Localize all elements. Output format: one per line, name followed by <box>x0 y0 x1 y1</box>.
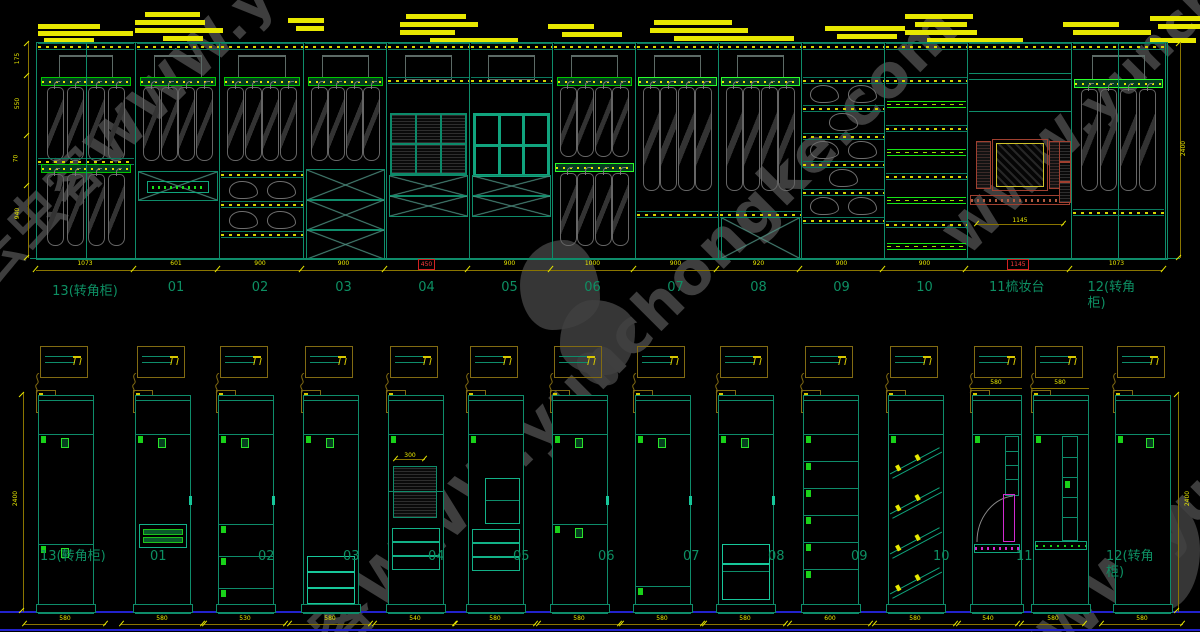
small-drawer-grid <box>390 113 467 175</box>
dim-text-block <box>288 18 324 23</box>
dim-text-block <box>145 12 200 17</box>
bay-label: 03 <box>302 280 385 312</box>
dim-text-block <box>905 30 977 35</box>
cabinet-05 <box>468 395 524 614</box>
cabinet-label: 05 <box>513 549 530 565</box>
bay-12-corner <box>1071 43 1166 259</box>
cabinet-dim: 580 <box>24 614 106 625</box>
bay-08 <box>718 43 802 259</box>
inner-dim: 300 <box>395 452 425 460</box>
dim-text-block <box>296 26 324 31</box>
left-dim: 940 <box>14 208 21 219</box>
cabinet-13-corner <box>38 395 94 614</box>
dim-text-block <box>1063 22 1119 27</box>
cabinet-label: 07 <box>683 549 700 565</box>
bay-label: 09 <box>800 280 883 312</box>
cabinet-dim: 530 <box>204 614 286 625</box>
bags-shelf <box>224 177 300 199</box>
mirror-frame <box>992 139 1048 191</box>
cabinet-06 <box>552 395 608 614</box>
cabinet-12-corner <box>1115 395 1171 614</box>
drawer <box>392 528 440 542</box>
bay-label: 02 <box>218 280 302 312</box>
dim-text-block <box>674 36 794 41</box>
door-handle <box>606 496 609 505</box>
pullout-rack <box>147 181 209 193</box>
cad-canvas: 云虫客WWW.yunchongke.com 云虫客WWW.yunchongke.… <box>0 0 1200 632</box>
bay-label-row: 13(转角柜) 01 02 03 04 05 06 07 08 09 10 11… <box>36 280 1166 312</box>
dimension-row: 1073 601 900 900 450 900 1000 900 920 90… <box>36 259 1166 271</box>
bay-04 <box>386 43 470 259</box>
drawer-x-front <box>389 195 468 217</box>
left-dim: 550 <box>14 98 21 109</box>
right-dim-line <box>1178 393 1179 612</box>
cabinet-label: 08 <box>768 549 785 565</box>
garments <box>559 173 630 246</box>
cabinet-dim: 540 <box>958 614 1018 625</box>
dim-text-block <box>1150 16 1200 21</box>
door-handle <box>772 496 775 505</box>
cabinet-10-shoe <box>888 395 944 614</box>
cabinet-label: 06 <box>598 549 615 565</box>
cabinet-label: 03 <box>343 549 360 565</box>
dim-text-block <box>825 26 905 31</box>
garments <box>310 87 381 161</box>
dim-text-block <box>650 28 748 33</box>
dim-text-block <box>400 30 455 35</box>
cabinet-11b <box>1033 395 1089 614</box>
drawer <box>472 529 520 543</box>
cabinet-03 <box>303 395 359 614</box>
drawer <box>307 588 355 604</box>
cabinet-04: 300 <box>388 395 444 614</box>
cabinet-02 <box>218 395 274 614</box>
bay-03 <box>303 43 387 259</box>
cube-shelves <box>473 113 550 177</box>
bay-label: 08 <box>717 280 800 312</box>
cabinet-08 <box>718 395 774 614</box>
bags-shelf <box>806 167 881 187</box>
bay-label: 06 <box>551 280 634 312</box>
garments <box>559 87 630 157</box>
sloped-shoe-shelf <box>890 567 942 599</box>
cabinet-dim: 580 <box>874 614 956 625</box>
divider <box>86 43 87 259</box>
dim-text-block <box>654 20 732 25</box>
bay-07 <box>635 43 719 259</box>
bags-shelf <box>806 195 881 215</box>
counter <box>1035 541 1087 550</box>
cabinet-dim: 580 <box>704 614 786 625</box>
left-dim-line <box>23 393 24 612</box>
cabinet-dim: 540 <box>374 614 456 625</box>
shelf <box>887 149 966 156</box>
mirror-glass <box>996 143 1044 187</box>
shelf-column <box>1005 436 1019 496</box>
drawer-x-front <box>306 169 385 201</box>
cabinet-label: 01 <box>150 549 167 565</box>
dim-text-block <box>163 36 203 41</box>
dim-text-block <box>38 24 100 29</box>
drawer <box>307 572 355 588</box>
stool-glyph <box>73 356 81 366</box>
ground-line <box>0 629 1200 631</box>
right-dim: 2400 <box>1184 491 1191 506</box>
shelf <box>969 79 1071 80</box>
dim-text-block <box>38 31 133 36</box>
sloped-shoe-shelf <box>890 487 942 519</box>
mirror-door <box>1003 494 1015 542</box>
cabinet-dim: 580 <box>121 614 203 625</box>
side-hatch-column <box>1059 141 1071 203</box>
drawer-x-front <box>472 175 551 197</box>
bay-label: 01 <box>134 280 218 312</box>
dim-text-block <box>406 14 466 19</box>
bay-11-dressing: 1145 <box>967 43 1072 259</box>
dim-text-block <box>400 22 478 27</box>
cabinet-label: 12(转角柜) <box>1106 549 1164 581</box>
dim-text-block <box>837 34 897 39</box>
drawer-x-front <box>472 195 551 217</box>
shelf-box <box>485 478 520 524</box>
sloped-shoe-shelf <box>890 447 942 479</box>
cabinet-dim: 580 <box>1021 614 1085 625</box>
cabinet-top-dim: 580 <box>1031 379 1089 389</box>
cabinet-09 <box>803 395 859 614</box>
bay-label: 10 <box>883 280 966 312</box>
garments <box>226 87 298 161</box>
bags-shelf <box>806 139 881 159</box>
dim-text-block <box>915 22 967 27</box>
dim-text-block <box>1073 30 1151 35</box>
wardrobe-elevation: 1145 <box>36 42 1168 260</box>
right-dim: 2400 <box>1180 141 1187 156</box>
cabinet-dim: 580 <box>289 614 371 625</box>
drawer-x-front <box>721 217 800 259</box>
bay-05 <box>469 43 553 259</box>
cabinet-dim: 580 <box>454 614 536 625</box>
bay-13-corner <box>37 43 135 259</box>
shelf <box>969 111 1071 112</box>
bags-shelf <box>806 83 881 103</box>
bay-01 <box>135 43 220 259</box>
shelf-column <box>1062 436 1078 541</box>
shelf <box>887 197 966 204</box>
bags-shelf <box>224 207 300 229</box>
dim-text-block <box>135 28 223 33</box>
left-dim: 2400 <box>12 491 19 506</box>
door-handle <box>689 496 692 505</box>
cabinet-11a-dresser <box>972 395 1022 614</box>
dim-text-block <box>905 14 973 19</box>
dim-text-block <box>135 20 205 25</box>
garments <box>725 87 796 191</box>
drawer-x-front <box>306 199 385 231</box>
bay-label: 05 <box>468 280 551 312</box>
bay-label: 13(转角柜) <box>36 280 134 312</box>
cabinet-label: 09 <box>851 549 868 565</box>
dim-text-block <box>562 32 622 37</box>
bay-label: 11梳妆台 <box>966 280 1070 312</box>
left-dim: 70 <box>12 155 19 163</box>
drawer-x-front <box>138 171 218 201</box>
cabinet-label: 13(转角柜) <box>40 549 122 565</box>
bay-label: 12(转角柜) <box>1070 280 1163 312</box>
cabinet-label: 11 <box>1016 549 1033 565</box>
drawer <box>722 544 770 564</box>
bags-shelf <box>806 111 881 131</box>
shelf <box>887 243 966 250</box>
cabinet-dim: 580 <box>538 614 620 625</box>
dresser-counter <box>974 544 1020 553</box>
hatched-drawer-block <box>393 466 437 518</box>
mirror-width-dim: 1145 <box>976 217 1064 225</box>
bay-02 <box>219 43 304 259</box>
cabinet-label: 04 <box>428 549 445 565</box>
shelf <box>969 73 1071 74</box>
drawer <box>139 524 187 548</box>
mirror-assembly <box>976 139 1064 191</box>
drawer-x-front <box>389 175 468 197</box>
left-dim: 175 <box>14 53 21 64</box>
garments <box>142 87 214 161</box>
door-handle <box>189 496 192 505</box>
bay-label: 04 <box>385 280 468 312</box>
divider <box>1118 43 1119 259</box>
drawer <box>722 564 770 600</box>
cabinet-top-dim: 580 <box>970 379 1022 389</box>
door-handle <box>272 496 275 505</box>
drawer-x-front <box>306 229 385 260</box>
mirror-side-panel <box>976 141 991 189</box>
bay-label: 07 <box>634 280 717 312</box>
cabinet-dim: 580 <box>1101 614 1183 625</box>
cabinet-dim: 600 <box>789 614 871 625</box>
cabinet-label: 10 <box>933 549 950 565</box>
garments <box>642 87 713 191</box>
cabinet-01 <box>135 395 191 614</box>
cabinet-07 <box>635 395 691 614</box>
dim-text-block <box>548 24 594 29</box>
dresser-counter <box>970 195 1070 205</box>
bay-06 <box>552 43 636 259</box>
shelf <box>887 101 966 108</box>
dim-text-block <box>1158 24 1200 29</box>
cabinet-label: 02 <box>258 549 275 565</box>
bay-10 <box>884 43 968 259</box>
bay-09 <box>801 43 885 259</box>
cabinet-dim: 580 <box>621 614 703 625</box>
